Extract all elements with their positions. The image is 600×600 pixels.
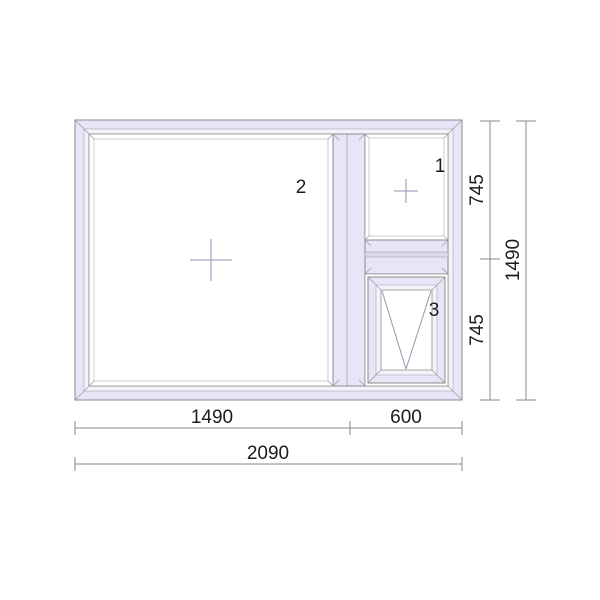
pane-bottom-right-label: 3 [429,300,440,321]
transom-groove [365,252,448,257]
window-elevation-svg: 2 1 [0,0,600,600]
pane-bottom-right-tilt: 3 [365,274,448,386]
transom [365,240,448,274]
dim-label-bottom-right-height: 745 [467,314,488,346]
pane-left-label: 2 [296,177,307,198]
pane-bottom-right-glass[interactable] [381,290,432,370]
dim-label-total-width: 2090 [247,443,289,464]
dim-label-right-width: 600 [390,407,422,428]
pane-top-right-label: 1 [435,156,446,177]
pane-top-right-fixed: 1 [365,134,448,240]
dim-label-total-height: 1490 [503,239,524,281]
pane-left-fixed: 2 [89,134,333,386]
window-drawing-canvas: 2 1 [0,0,600,600]
dim-label-left-width: 1490 [191,407,233,428]
mullion [333,134,365,386]
mullion-profile [333,134,365,386]
dim-label-top-right-height: 745 [467,174,488,206]
